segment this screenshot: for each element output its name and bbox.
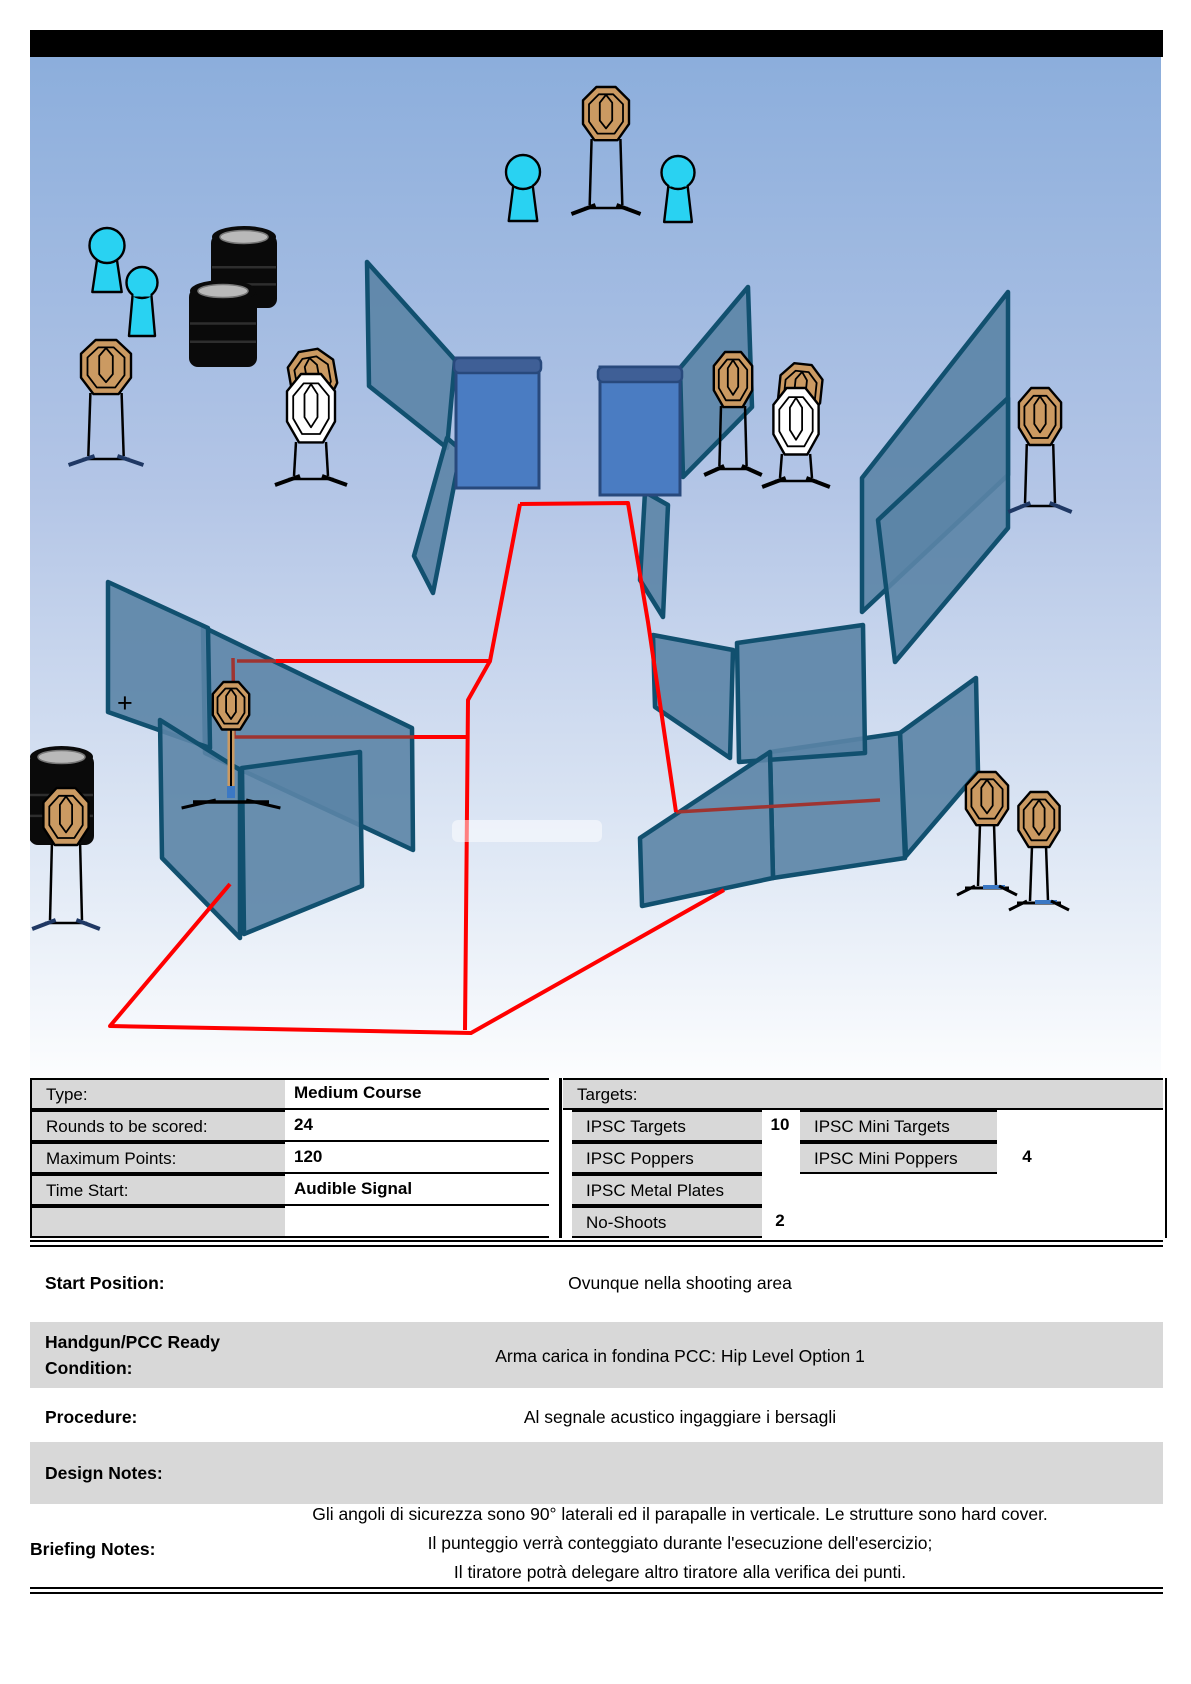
info-value-cell [288, 1206, 546, 1238]
info-label-cell: Time Start: [32, 1174, 285, 1206]
stage-info-table: Type:Medium CourseRounds to be scored:24… [30, 1078, 1167, 1238]
target-type-cell: IPSC Poppers [572, 1142, 762, 1174]
plus-marker: + [117, 688, 133, 718]
target-count-cell: 10 [755, 1110, 805, 1142]
info-label-cell: Type: [32, 1078, 285, 1110]
target-type-cell: IPSC Mini Targets [800, 1110, 997, 1142]
target-type-cell: IPSC Metal Plates [572, 1174, 762, 1206]
target-count-cell: 4 [992, 1142, 1062, 1174]
info-label-cell [32, 1206, 285, 1238]
barrel-stack [189, 280, 257, 367]
mini-popper [127, 267, 158, 336]
title-bar [30, 30, 1163, 57]
table-divider [559, 1078, 562, 1238]
hard-cover-panel [598, 367, 682, 495]
start-position-value: Ovunque nella shooting area [230, 1270, 1130, 1296]
briefing-notes-label: Briefing Notes: [30, 1536, 260, 1562]
stage-briefing-page: + Type:Medium CourseRounds to be scored:… [0, 0, 1191, 1684]
briefing-line: Il tiratore potrà delegare altro tirator… [230, 1558, 1130, 1587]
target-type-cell: IPSC Targets [572, 1110, 762, 1142]
info-label-cell: Maximum Points: [32, 1142, 285, 1174]
ground-highlight [452, 820, 602, 842]
target-type-cell: IPSC Mini Poppers [800, 1142, 997, 1174]
targets-header-cell: Targets: [563, 1078, 1163, 1110]
info-value-cell: 120 [288, 1142, 546, 1174]
briefing-notes-value: Gli angoli di sicurezza sono 90° lateral… [230, 1500, 1130, 1587]
design-notes-label: Design Notes: [45, 1460, 275, 1486]
info-value-cell: Audible Signal [288, 1174, 546, 1206]
info-label-cell: Rounds to be scored: [32, 1110, 285, 1142]
hard-cover-panel [454, 358, 541, 488]
sky-background [30, 57, 1161, 1078]
target-count-cell: 2 [755, 1206, 805, 1238]
divider-rule [30, 1240, 1163, 1247]
stage-diagram: + [30, 57, 1161, 1078]
wall-panel [737, 625, 865, 762]
ready-condition-value: Arma carica in fondina PCC: Hip Level Op… [230, 1343, 1130, 1369]
info-value-cell: Medium Course [288, 1078, 546, 1110]
procedure-value: Al segnale acustico ingaggiare i bersagl… [230, 1404, 1130, 1430]
bottom-rule [30, 1587, 1163, 1594]
target-type-cell: No-Shoots [572, 1206, 762, 1238]
info-value-cell: 24 [288, 1110, 546, 1142]
briefing-line: Gli angoli di sicurezza sono 90° lateral… [230, 1500, 1130, 1529]
briefing-line: Il punteggio verrà conteggiato durante l… [230, 1529, 1130, 1558]
